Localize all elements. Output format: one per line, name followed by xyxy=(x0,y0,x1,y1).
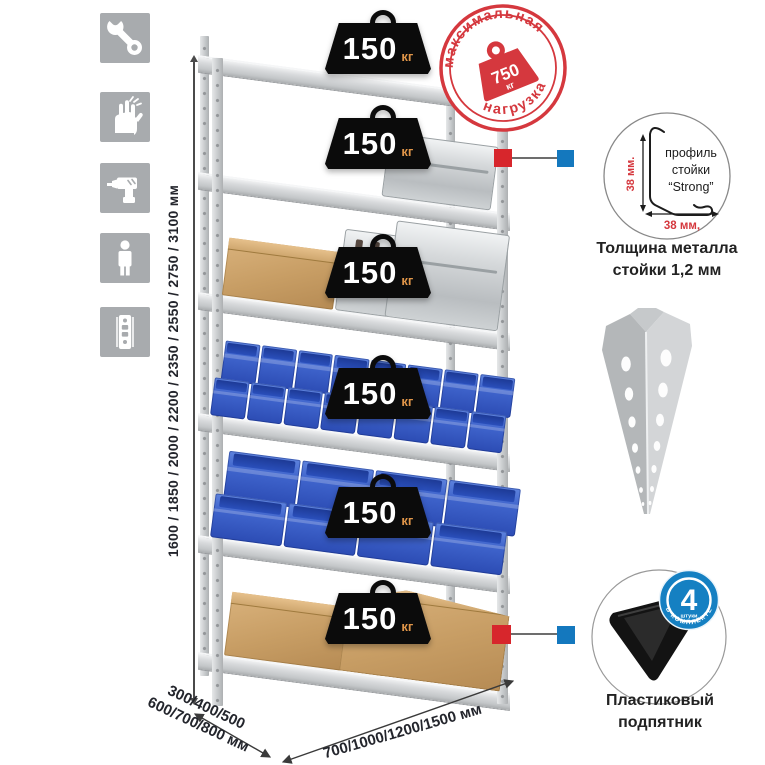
storage-bin xyxy=(430,406,470,448)
shelf-load-badge: 150кг xyxy=(325,105,431,169)
profile-caption-line1: Толщина металла xyxy=(577,238,757,260)
included-count-badge: 4 штуки в комплекте xyxy=(658,569,720,631)
foot-caption: Пластиковый подпятник xyxy=(575,690,745,733)
callout-marker-blue-bottom xyxy=(557,626,575,644)
foot-caption-line2: подпятник xyxy=(575,712,745,734)
callout-line-bottom xyxy=(511,633,557,635)
load-unit: кг xyxy=(401,144,413,159)
callout-marker-red-top xyxy=(494,149,512,167)
badge-count: 4 xyxy=(681,584,698,617)
foot-caption-line1: Пластиковый xyxy=(575,690,745,712)
load-unit: кг xyxy=(401,619,413,634)
storage-bin xyxy=(467,411,507,453)
profile-dim-vertical: 38 мм. xyxy=(625,157,637,192)
angle-post-image xyxy=(596,306,700,528)
shelving-infographic: 1600 / 1850 / 2000 / 2200 / 2350 / 2550 … xyxy=(0,0,765,765)
profile-caption-line2: стойки 1,2 мм xyxy=(577,260,757,282)
load-unit: кг xyxy=(401,273,413,288)
shelf-load-badge: 150кг xyxy=(325,580,431,644)
load-unit: кг xyxy=(401,394,413,409)
storage-bin xyxy=(210,493,287,546)
shelf-load-badge: 150кг xyxy=(325,234,431,298)
load-value: 150 xyxy=(343,603,398,634)
callout-marker-blue-top xyxy=(557,150,574,167)
load-value: 150 xyxy=(343,378,398,409)
storage-bin xyxy=(430,522,507,575)
profile-label-1: профиль xyxy=(665,146,717,160)
profile-caption: Толщина металла стойки 1,2 мм xyxy=(577,238,757,281)
callout-marker-red-bottom xyxy=(492,625,511,644)
post-profile-detail: 38 мм. 38 мм, профиль стойки “Strong” xyxy=(601,110,733,242)
load-unit: кг xyxy=(401,49,413,64)
rack-post-icon xyxy=(100,307,150,357)
callout-line-top xyxy=(512,157,557,159)
load-value: 150 xyxy=(343,257,398,288)
load-value: 150 xyxy=(343,33,398,64)
shelf-load-badge: 150кг xyxy=(325,474,431,538)
gloves-icon xyxy=(100,92,150,142)
height-options-label: 1600 / 1850 / 2000 / 2200 / 2350 / 2550 … xyxy=(165,111,183,631)
profile-dim-horizontal: 38 мм, xyxy=(664,220,700,232)
load-unit: кг xyxy=(401,513,413,528)
storage-bin xyxy=(283,387,323,429)
max-load-stamp: максимальная нагрузка 750 кг xyxy=(418,0,587,153)
shelf-load-badge: 150кг xyxy=(325,10,431,74)
profile-label-2: стойки xyxy=(672,163,710,177)
storage-bin xyxy=(210,377,250,419)
load-value: 150 xyxy=(343,497,398,528)
drill-icon xyxy=(100,163,150,213)
wrench-icon xyxy=(100,13,150,63)
shelf-load-badge: 150кг xyxy=(325,355,431,419)
person-icon xyxy=(100,233,150,283)
load-value: 150 xyxy=(343,128,398,159)
profile-label-3: “Strong” xyxy=(668,180,713,194)
storage-bin xyxy=(247,382,287,424)
height-dimension-line xyxy=(193,58,195,702)
